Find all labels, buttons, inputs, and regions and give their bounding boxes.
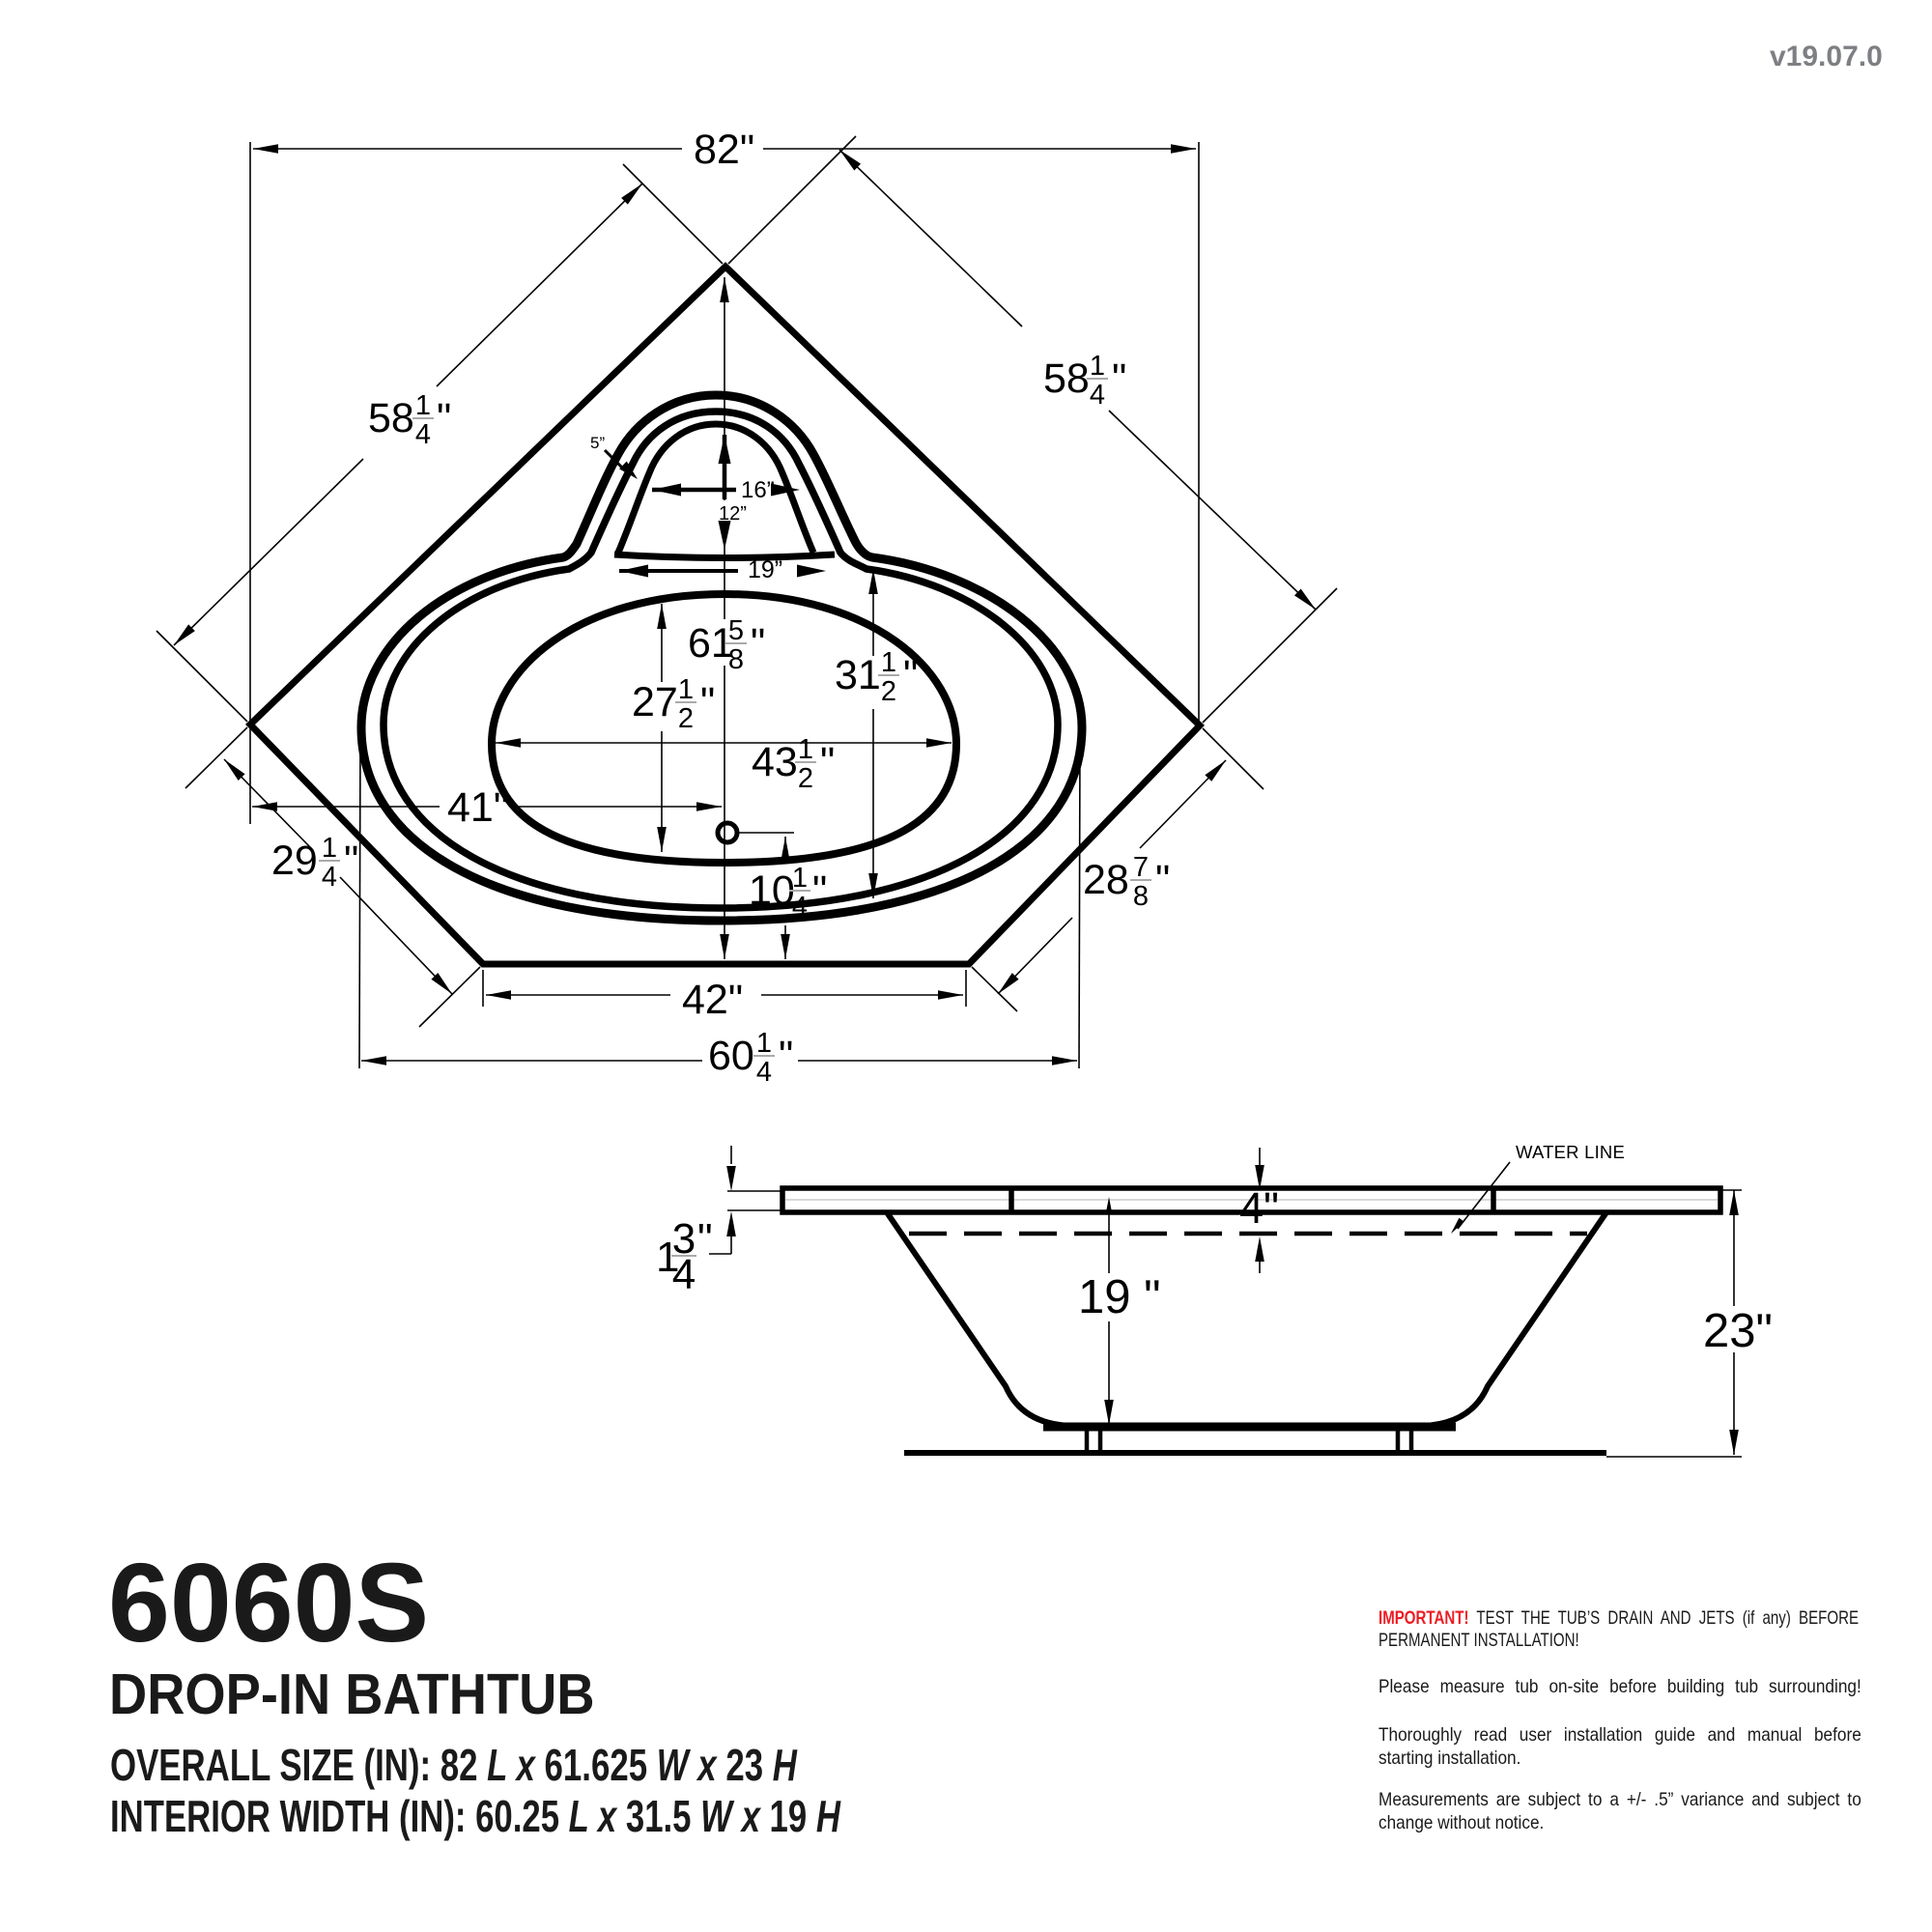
- svg-text:": ": [700, 679, 715, 725]
- svg-text:1: 1: [415, 390, 431, 421]
- svg-text:29: 29: [271, 838, 318, 884]
- svg-text:1: 1: [678, 674, 694, 705]
- svg-text:2: 2: [798, 763, 813, 794]
- svg-text:5”: 5”: [590, 434, 605, 452]
- svg-text:58: 58: [368, 395, 414, 441]
- svg-text:7: 7: [1133, 852, 1149, 883]
- svg-text:19”: 19”: [748, 556, 782, 583]
- svg-text:10: 10: [749, 867, 795, 914]
- svg-text:23": 23": [1703, 1305, 1773, 1357]
- svg-text:4: 4: [1090, 380, 1105, 411]
- svg-text:2: 2: [881, 676, 896, 707]
- svg-text:5: 5: [728, 615, 744, 646]
- svg-text:1: 1: [798, 734, 813, 765]
- svg-text:": ": [1155, 857, 1170, 903]
- svg-text:58: 58: [1043, 355, 1090, 402]
- svg-text:4": 4": [1239, 1183, 1279, 1233]
- svg-text:4: 4: [322, 862, 337, 893]
- svg-text:27: 27: [632, 679, 678, 725]
- svg-text:": ": [697, 1215, 713, 1263]
- svg-text:28: 28: [1083, 857, 1129, 903]
- svg-text:4: 4: [792, 892, 808, 923]
- svg-text:1: 1: [1090, 351, 1105, 382]
- svg-text:43: 43: [752, 739, 798, 785]
- svg-text:": ": [820, 739, 835, 785]
- svg-text:1: 1: [756, 1028, 772, 1059]
- svg-text:82": 82": [694, 127, 754, 173]
- svg-text:8: 8: [728, 644, 744, 675]
- svg-text:WATER LINE: WATER LINE: [1516, 1142, 1625, 1162]
- svg-text:": ": [344, 838, 358, 884]
- svg-text:2: 2: [678, 703, 694, 734]
- svg-text:19 ": 19 ": [1078, 1271, 1161, 1323]
- svg-text:4: 4: [415, 419, 431, 450]
- svg-text:4: 4: [756, 1057, 772, 1088]
- svg-text:": ": [779, 1033, 793, 1079]
- svg-text:16”: 16”: [741, 477, 775, 503]
- svg-text:8: 8: [1133, 881, 1149, 912]
- svg-text:4: 4: [672, 1251, 696, 1298]
- svg-text:60: 60: [708, 1033, 754, 1079]
- svg-text:1: 1: [322, 833, 337, 864]
- svg-text:1: 1: [792, 863, 808, 894]
- svg-text:1: 1: [881, 647, 896, 678]
- svg-text:42": 42": [682, 977, 743, 1023]
- svg-text:": ": [1112, 355, 1126, 402]
- svg-text:12”: 12”: [719, 503, 747, 525]
- svg-text:": ": [903, 652, 918, 698]
- svg-text:": ": [751, 620, 765, 667]
- svg-text:31: 31: [835, 652, 881, 698]
- svg-text:": ": [812, 867, 827, 914]
- svg-text:": ": [437, 395, 451, 441]
- svg-text:41": 41": [447, 784, 508, 831]
